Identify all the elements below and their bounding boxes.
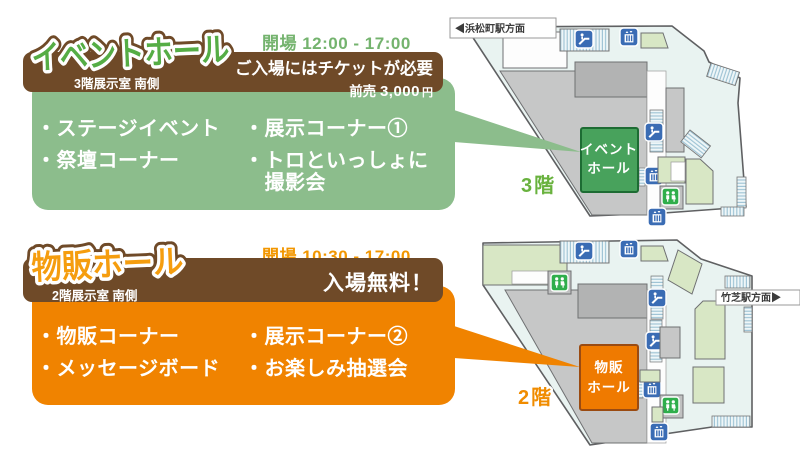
svg-text:物販ホール: 物販ホール bbox=[31, 243, 184, 287]
station-direction-takeshiba: 竹芝駅方面▶ bbox=[720, 291, 781, 304]
escalator-icon bbox=[648, 289, 666, 307]
goods-hall-map-label: ホール bbox=[587, 380, 631, 395]
free-admission-notice: 入場無料！ bbox=[323, 267, 433, 297]
event-floor-guide: 開場 12:00 - 17:00 ・ステージイベント ・祭壇コーナー ・展示コー… bbox=[0, 0, 800, 450]
elevator-icon bbox=[650, 423, 668, 441]
restroom-icon bbox=[662, 397, 679, 414]
stairs bbox=[721, 207, 744, 216]
ticket-notice: ご入場にはチケットが必要 bbox=[235, 55, 433, 79]
list-item: 撮影会 bbox=[244, 166, 326, 195]
room bbox=[671, 162, 685, 181]
goods-hall-title: 物販ホール 物販ホール 物販ホール bbox=[22, 236, 197, 294]
station-direction-hamamatsucho: ◀浜松町駅方面 bbox=[455, 22, 525, 35]
event-hall-hours: 開場 12:00 - 17:00 bbox=[262, 29, 411, 54]
goods-hall-map-label: 物販 bbox=[595, 359, 624, 375]
stairs bbox=[725, 276, 750, 288]
goods-hall-area bbox=[580, 345, 638, 410]
price-unit: 円 bbox=[422, 87, 433, 99]
room bbox=[652, 407, 663, 422]
list-item: ・お楽しみ抽選会 bbox=[244, 352, 408, 381]
escalator-icon bbox=[575, 242, 593, 260]
event-hall-title: イベントホール イベントホール イベントホール bbox=[22, 26, 242, 84]
list-item: ・メッセージボード bbox=[36, 352, 220, 381]
svg-text:イベントホール: イベントホール bbox=[31, 31, 230, 77]
list-item: ・ステージイベント bbox=[36, 112, 220, 141]
floor-map-3f: イベント ホール 3階 ◀浜松町駅方面 bbox=[450, 12, 800, 230]
list-item: ・物販コーナー bbox=[36, 320, 180, 349]
list-item: ・展示コーナー② bbox=[244, 320, 408, 349]
stairs bbox=[712, 416, 750, 427]
escalator-icon bbox=[645, 123, 663, 141]
room bbox=[575, 62, 647, 97]
price-amount: 3,000 bbox=[380, 83, 420, 100]
stairs bbox=[744, 307, 752, 332]
room bbox=[578, 284, 647, 318]
stairs bbox=[737, 177, 746, 208]
event-hall-map-label: ホール bbox=[587, 161, 631, 176]
ticket-price: 前売 3,000円 bbox=[235, 80, 433, 100]
floor-label-2f: 2階 bbox=[518, 386, 553, 409]
floor-map-2f: 物販 ホール 2階 竹芝駅方面▶ bbox=[450, 228, 800, 448]
elevator-icon bbox=[648, 208, 666, 226]
room bbox=[660, 327, 680, 358]
event-hall-admission: ご入場にはチケットが必要 前売 3,000円 bbox=[235, 55, 433, 100]
restroom-icon bbox=[662, 188, 679, 205]
elevator-icon bbox=[643, 380, 661, 398]
event-hall-map-label: イベント bbox=[580, 142, 638, 157]
elevator-icon bbox=[620, 240, 638, 258]
elevator-icon bbox=[620, 28, 638, 46]
escalator-icon bbox=[575, 30, 593, 48]
floor-label-3f: 3階 bbox=[521, 174, 556, 197]
escalator-shaft bbox=[651, 276, 663, 289]
room bbox=[695, 301, 725, 359]
restroom-icon bbox=[551, 274, 568, 291]
room bbox=[641, 33, 668, 48]
list-item: ・祭壇コーナー bbox=[36, 144, 180, 173]
room bbox=[641, 246, 668, 261]
room bbox=[693, 367, 724, 403]
event-hall-area bbox=[581, 128, 638, 192]
list-item: ・展示コーナー① bbox=[244, 112, 408, 141]
elevator-shaft bbox=[639, 168, 645, 186]
price-prefix: 前売 bbox=[349, 84, 376, 99]
room bbox=[640, 370, 660, 382]
escalator-shaft bbox=[651, 307, 663, 319]
